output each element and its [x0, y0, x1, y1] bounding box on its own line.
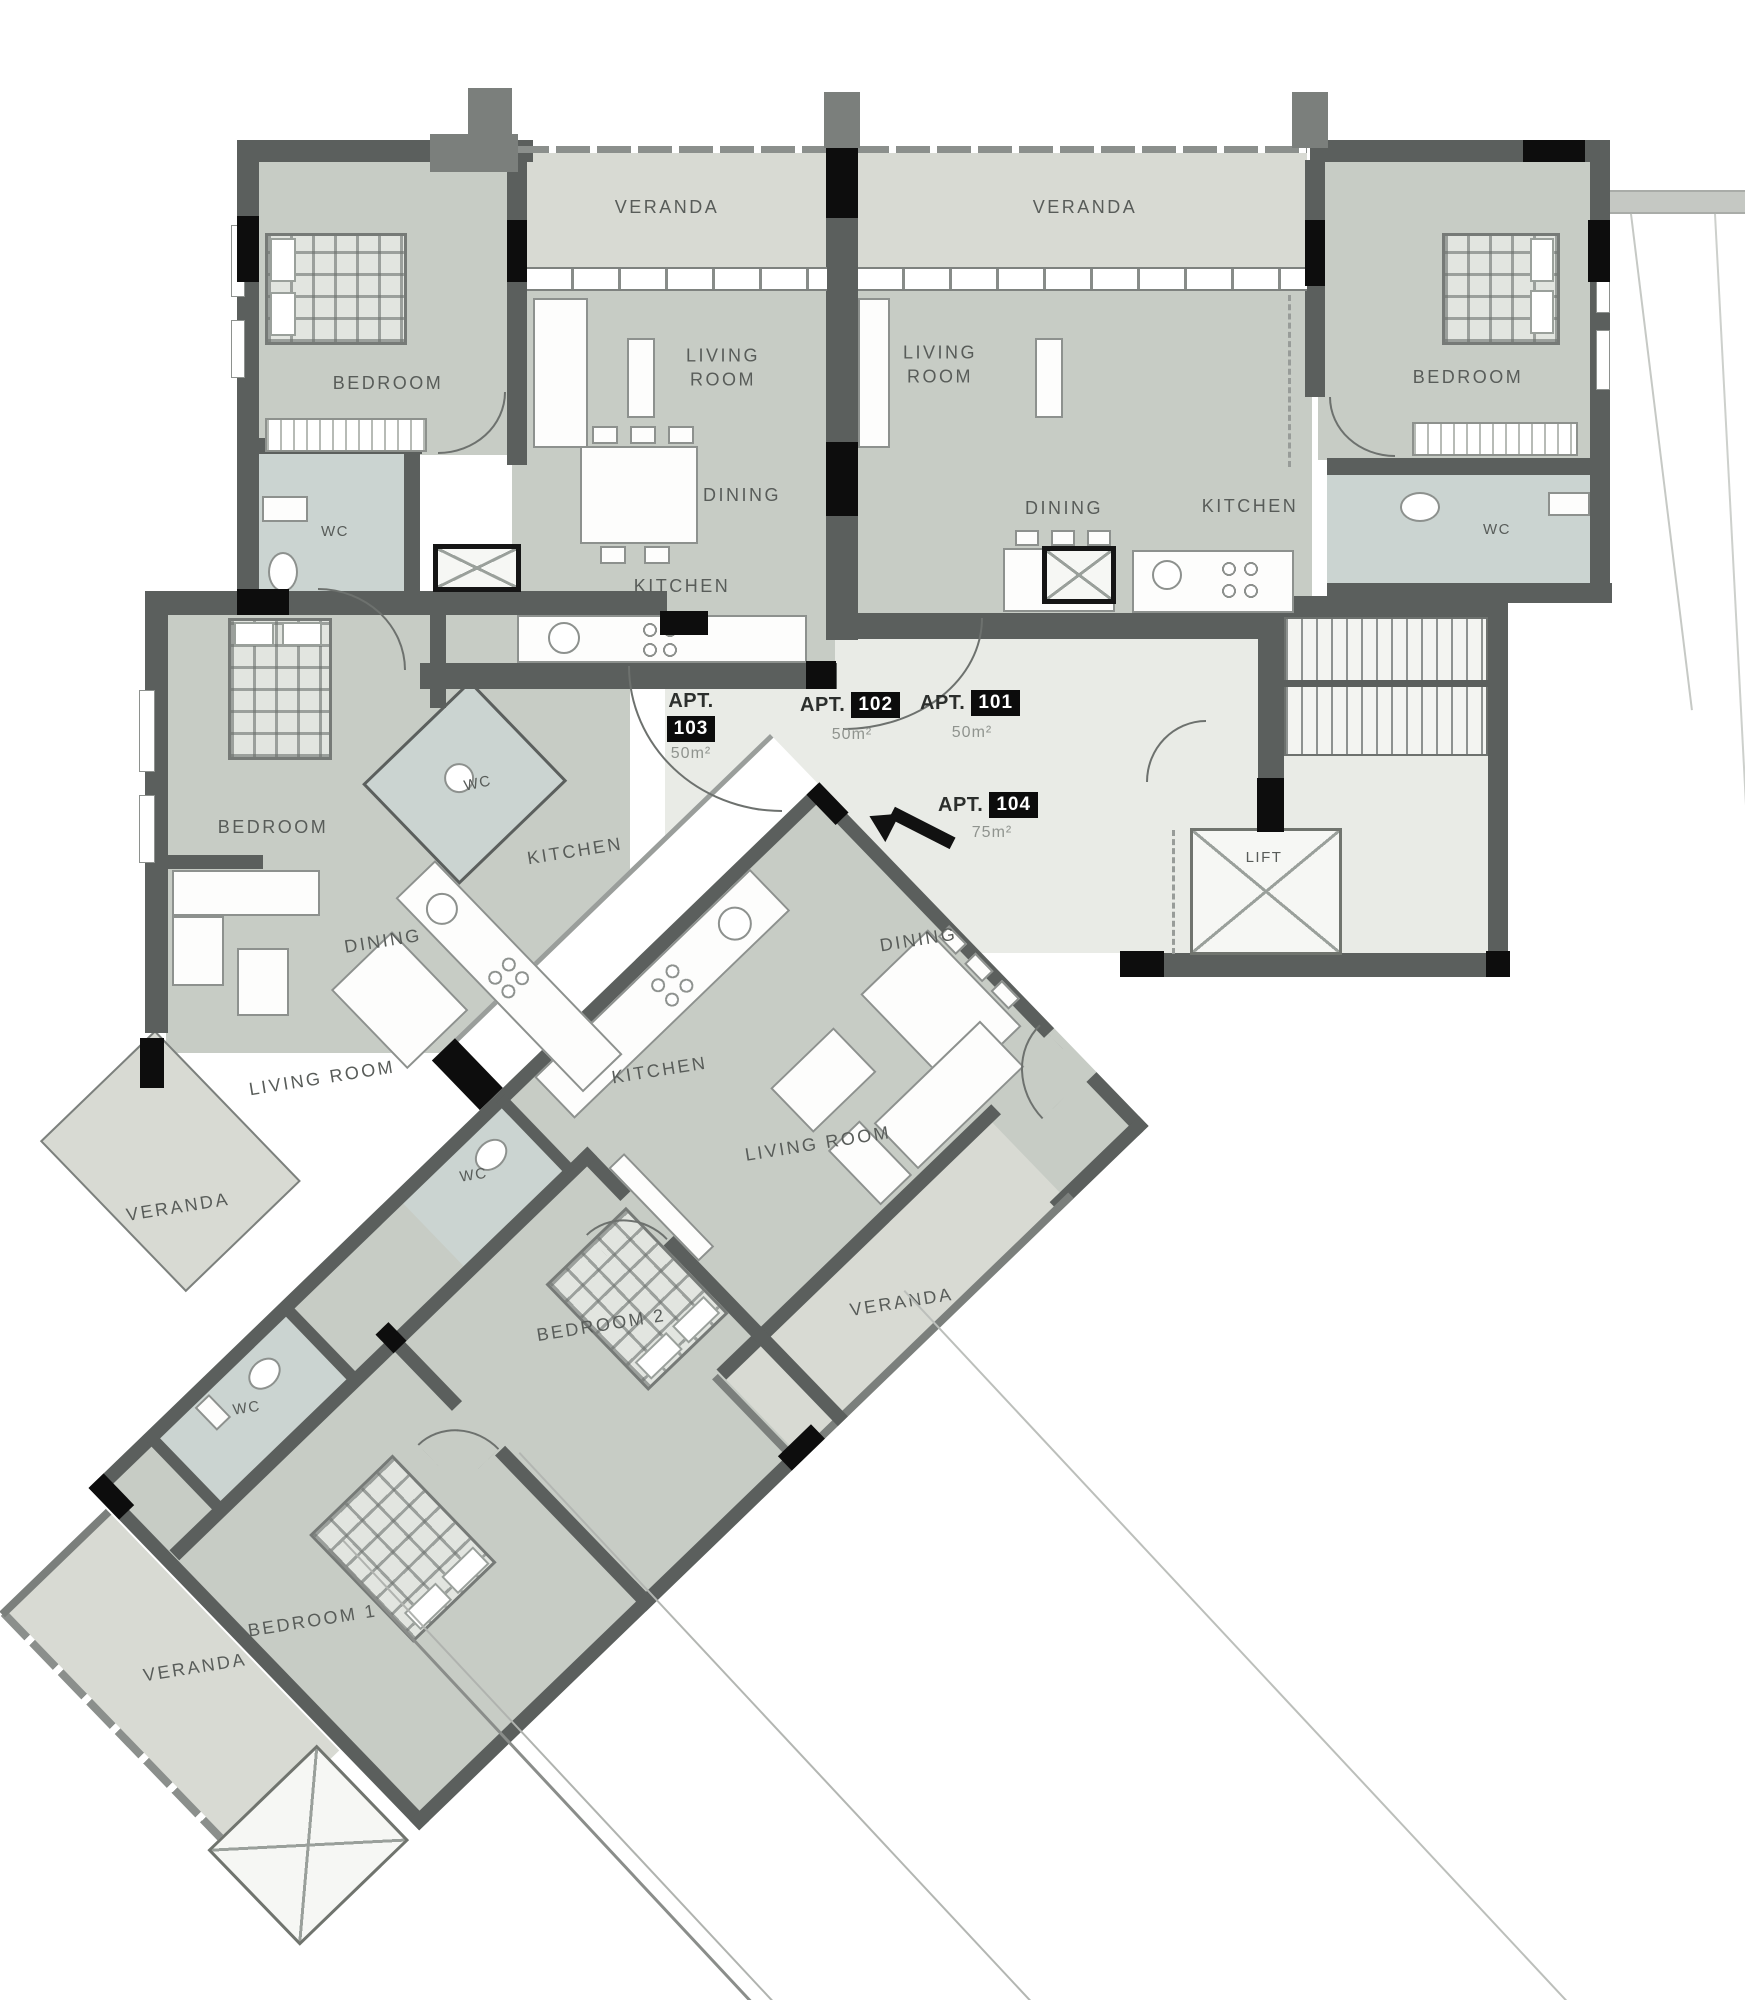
sofa — [858, 298, 890, 448]
room-label: BEDROOM — [333, 371, 444, 395]
apt-number-badge: 102 — [851, 692, 900, 718]
roof-post — [1292, 92, 1328, 148]
room-label: WC — [231, 1397, 262, 1421]
column — [1486, 951, 1510, 977]
window — [1596, 330, 1610, 390]
stove-icon — [1218, 558, 1262, 602]
roof-post — [430, 134, 518, 172]
column — [507, 220, 527, 282]
room-label-line: LIVING — [686, 346, 760, 366]
pillow — [282, 622, 322, 646]
room-label: WC — [321, 522, 349, 542]
chair — [592, 426, 618, 444]
window-band — [858, 267, 1307, 291]
room-label: BEDROOM — [1413, 365, 1524, 389]
room-label: DINING — [703, 483, 781, 507]
room-label: VERANDA — [1033, 195, 1138, 219]
boundary-line — [904, 1290, 1724, 2000]
apartment-tag-102: APT. 102 — [800, 692, 900, 718]
apt-number-badge: 104 — [989, 792, 1038, 818]
chair — [600, 546, 626, 564]
room-label: VERANDA — [615, 195, 720, 219]
chair — [1015, 530, 1039, 546]
apt-number-badge: 103 — [667, 716, 716, 742]
chair — [644, 546, 670, 564]
floor-plan: DINING KITCHEN LIVING ROOM VERANDA BEDRO… — [0, 0, 1745, 2000]
column — [1588, 220, 1610, 282]
toilet-icon — [268, 552, 298, 592]
room-label: WC — [458, 1164, 489, 1188]
roof-post — [824, 92, 860, 148]
apartment-tag-103: APT. 103 50m² — [645, 690, 737, 763]
room-label-line: ROOM — [907, 367, 973, 387]
room-label: WC — [1483, 520, 1511, 540]
washbasin-icon — [262, 496, 308, 522]
room-label: DINING — [1025, 496, 1103, 520]
sink-icon — [419, 886, 464, 931]
window-band — [527, 267, 827, 291]
chair — [668, 426, 694, 444]
chair — [1087, 530, 1111, 546]
column — [140, 1038, 164, 1088]
pillow — [1530, 290, 1554, 334]
wall — [1258, 596, 1505, 618]
column — [1305, 220, 1325, 286]
apt-prefix: APT. — [920, 692, 965, 715]
wall — [430, 613, 446, 708]
chair — [1051, 530, 1075, 546]
wall — [1120, 953, 1510, 977]
column — [1120, 951, 1164, 977]
room-label: LIFT — [1246, 848, 1283, 868]
wardrobe — [1412, 422, 1578, 456]
room-label: LIVING ROOM — [247, 1054, 397, 1101]
pillow — [234, 622, 274, 646]
room-label-line: ROOM — [690, 370, 756, 390]
column — [1523, 140, 1585, 162]
wall — [168, 855, 263, 869]
pillow — [270, 292, 296, 336]
wall — [1488, 596, 1508, 977]
room-label: LIVING ROOM — [686, 344, 760, 393]
wall — [1327, 458, 1610, 475]
apt-prefix: APT. — [800, 694, 845, 717]
column — [237, 216, 259, 282]
boundary-line — [1714, 214, 1745, 1113]
apartment-tag-101: APT. 101 — [920, 690, 1020, 716]
column — [806, 661, 836, 689]
sofa — [533, 298, 588, 448]
apt-number-badge: 101 — [971, 690, 1020, 716]
column — [660, 611, 708, 635]
site-band — [1610, 190, 1745, 214]
column — [237, 589, 289, 615]
coffee-table — [237, 948, 289, 1016]
boundary-line — [1630, 214, 1693, 711]
dashed-line — [1172, 830, 1175, 954]
veranda-rail — [855, 146, 1307, 153]
apt-prefix: APT. — [668, 690, 713, 713]
wall — [404, 452, 420, 607]
room-label: LIVING ROOM — [903, 341, 977, 390]
room-label-line: LIVING — [903, 343, 977, 363]
sink-icon — [548, 622, 580, 654]
window — [139, 690, 155, 772]
cabinet — [1035, 338, 1063, 418]
toilet-icon — [1400, 492, 1440, 522]
pillow — [270, 238, 296, 282]
apartment-tag-104: APT. 104 — [938, 792, 1038, 818]
sink-icon — [1152, 560, 1182, 590]
apt-prefix: APT. — [938, 794, 983, 817]
apt-area: 75m² — [972, 824, 1012, 842]
column — [826, 148, 858, 218]
apt-area: 50m² — [671, 745, 711, 763]
dashed-line — [1288, 295, 1291, 467]
window — [231, 320, 245, 378]
room-label: BEDROOM — [218, 815, 329, 839]
room-label: KITCHEN — [634, 574, 731, 598]
appliance-box — [1042, 546, 1116, 604]
wall — [507, 140, 527, 465]
veranda-rail — [515, 146, 835, 153]
dining-table — [580, 446, 698, 544]
pillow — [1530, 238, 1554, 282]
stair-rail — [1284, 680, 1488, 687]
apt-area: 50m² — [832, 726, 872, 744]
wall — [145, 591, 667, 615]
column — [826, 442, 858, 516]
sofa — [172, 870, 320, 916]
cabinet — [627, 338, 655, 418]
wardrobe — [265, 418, 427, 452]
appliance-box — [433, 544, 521, 592]
room-label: KITCHEN — [1202, 494, 1299, 518]
chair — [630, 426, 656, 444]
window — [139, 795, 155, 863]
stove-icon — [482, 951, 536, 1005]
sofa — [172, 916, 224, 986]
column — [1257, 778, 1284, 832]
washbasin-icon — [1548, 492, 1590, 516]
apt-area: 50m² — [952, 724, 992, 742]
